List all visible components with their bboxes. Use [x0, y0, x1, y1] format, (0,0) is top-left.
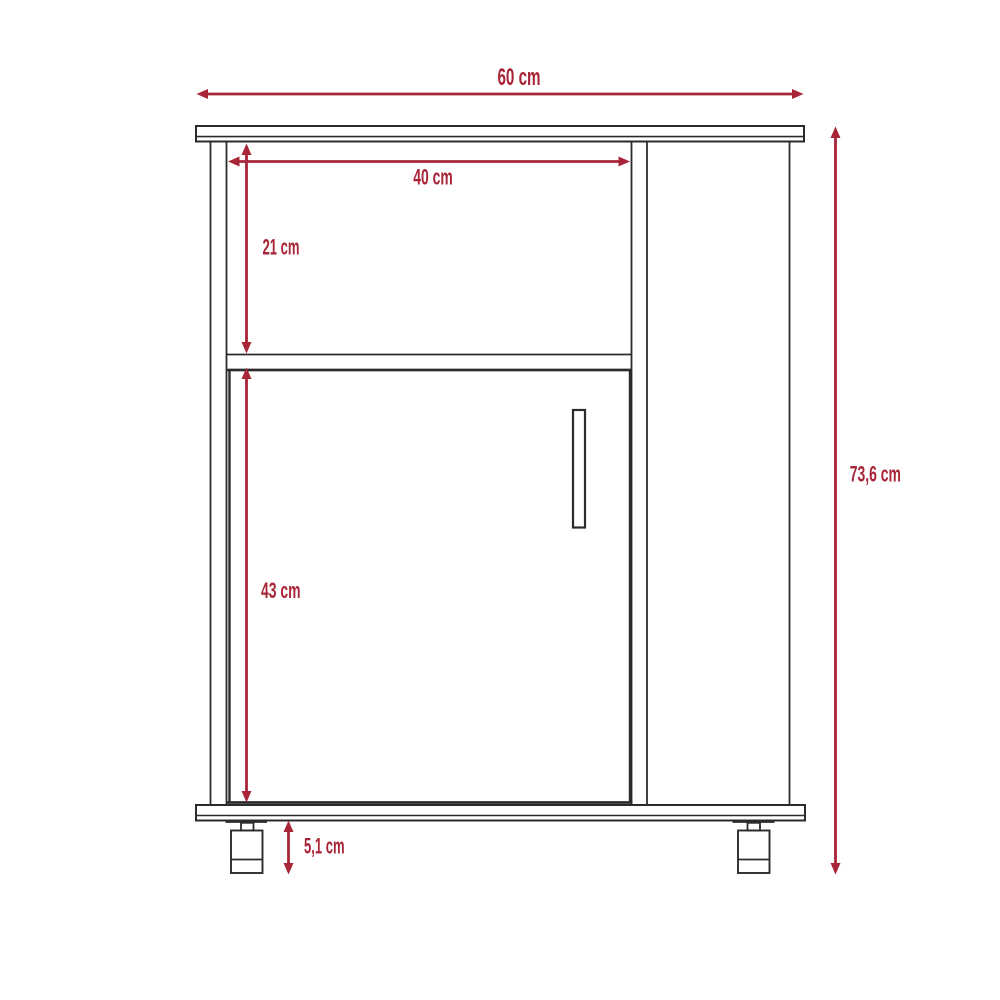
svg-text:73,6 cm: 73,6 cm — [850, 461, 901, 486]
svg-text:21 cm: 21 cm — [263, 234, 300, 260]
svg-text:5,1 cm: 5,1 cm — [304, 833, 345, 859]
svg-text:60 cm: 60 cm — [497, 65, 540, 91]
svg-text:43 cm: 43 cm — [261, 578, 301, 603]
svg-text:40 cm: 40 cm — [413, 164, 453, 189]
